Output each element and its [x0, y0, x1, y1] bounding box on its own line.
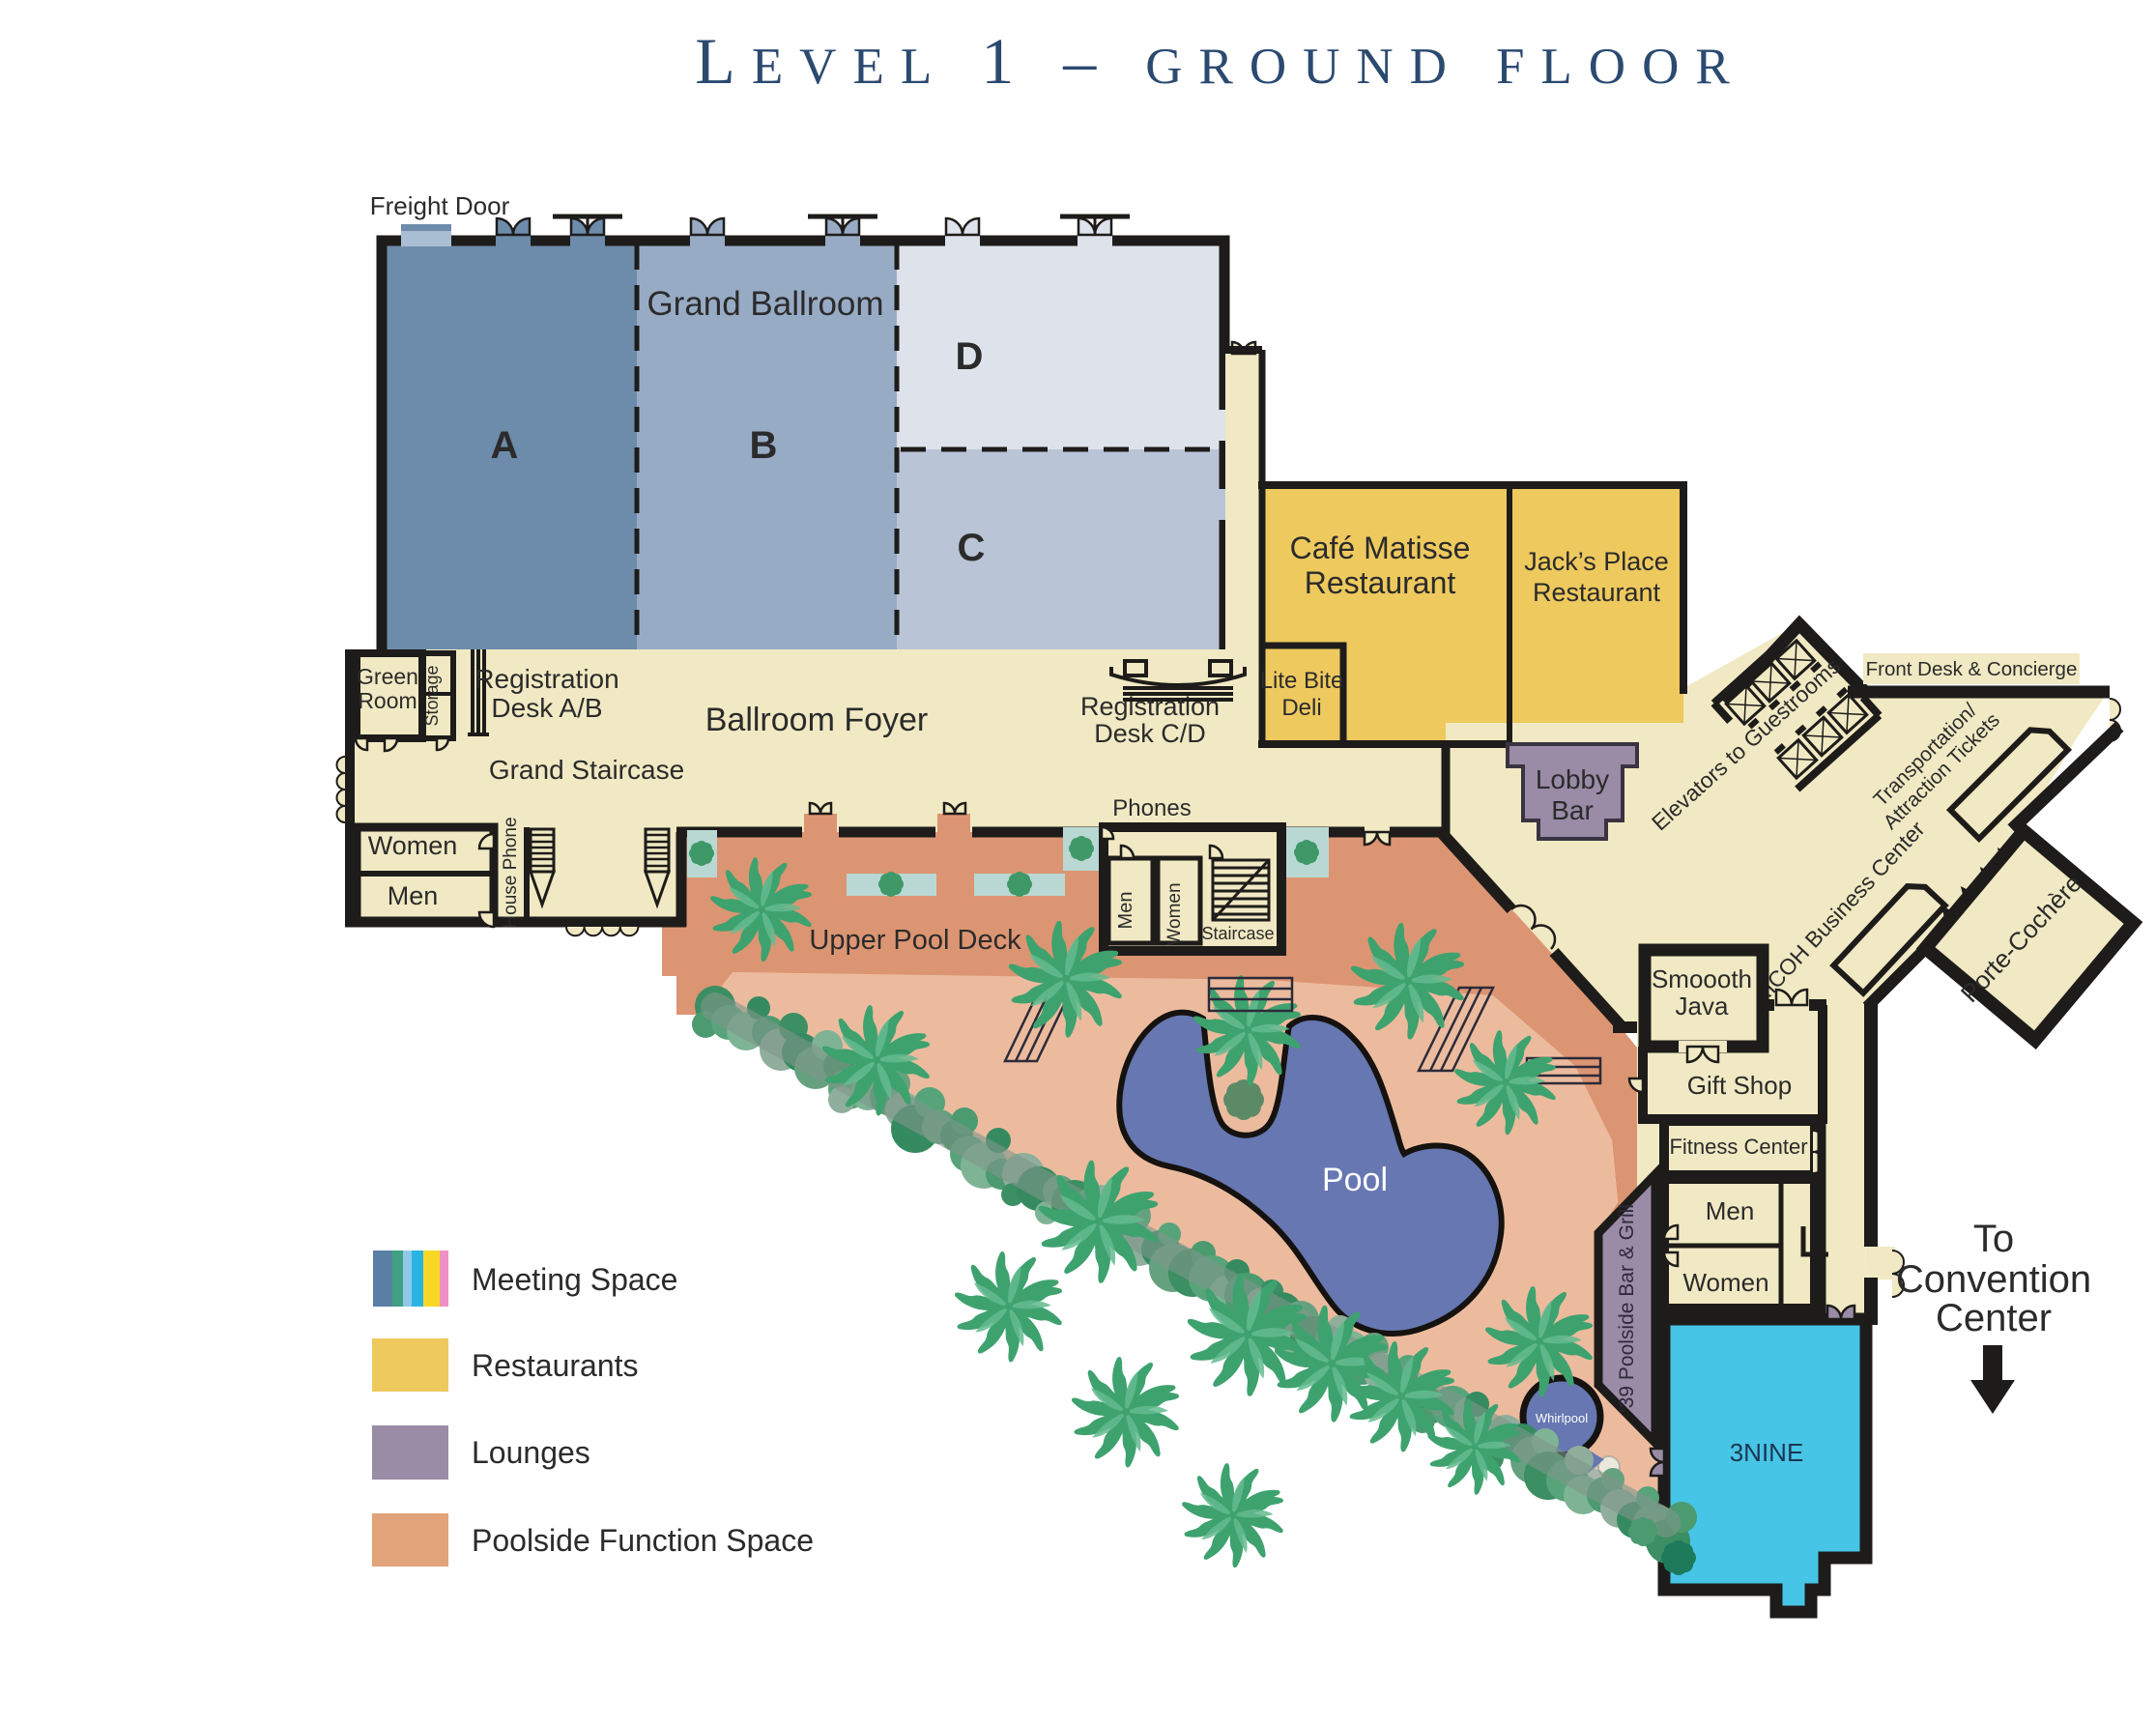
svg-text:Restaurants: Restaurants — [472, 1348, 639, 1383]
svg-text:Fitness Center: Fitness Center — [1669, 1135, 1807, 1159]
svg-text:Registration: Registration — [474, 664, 618, 694]
svg-text:A: A — [491, 424, 519, 467]
svg-text:C: C — [958, 527, 986, 569]
svg-text:‘39 Poolside Bar & Grill: ‘39 Poolside Bar & Grill — [1616, 1204, 1638, 1413]
svg-text:Whirlpool: Whirlpool — [1536, 1411, 1588, 1425]
svg-text:Café Matisse: Café Matisse — [1290, 531, 1471, 565]
svg-text:Men: Men — [388, 881, 439, 910]
svg-text:Smoooth: Smoooth — [1652, 964, 1752, 993]
svg-text:Storage: Storage — [422, 665, 442, 726]
svg-text:Front Desk & Concierge: Front Desk & Concierge — [1866, 658, 2078, 680]
svg-text:Women: Women — [1682, 1268, 1768, 1297]
svg-text:Desk C/D: Desk C/D — [1094, 719, 1206, 748]
svg-text:Meeting Space: Meeting Space — [472, 1262, 677, 1297]
svg-text:Staircase: Staircase — [1201, 924, 1274, 943]
svg-text:Bar: Bar — [1551, 795, 1594, 825]
svg-text:Men: Men — [1115, 892, 1136, 930]
svg-text:Men: Men — [1706, 1196, 1755, 1225]
svg-text:Lite Bite: Lite Bite — [1260, 668, 1344, 694]
svg-text:Gift Shop: Gift Shop — [1687, 1071, 1792, 1100]
svg-text:Ballroom Foyer: Ballroom Foyer — [705, 702, 929, 738]
svg-text:B: B — [750, 424, 778, 467]
svg-text:To: To — [1973, 1218, 2014, 1260]
svg-text:Restaurant: Restaurant — [1305, 565, 1456, 600]
svg-text:House Phone: House Phone — [501, 817, 521, 928]
svg-text:Women: Women — [368, 831, 458, 860]
svg-text:Convention: Convention — [1896, 1258, 2091, 1301]
svg-text:Upper Pool Deck: Upper Pool Deck — [809, 925, 1021, 956]
svg-text:Center: Center — [1936, 1297, 2052, 1339]
svg-text:Grand Staircase: Grand Staircase — [489, 755, 684, 785]
svg-text:Pool: Pool — [1322, 1162, 1388, 1198]
svg-text:3NINE: 3NINE — [1730, 1438, 1804, 1467]
svg-text:Deli: Deli — [1281, 695, 1321, 721]
svg-text:Java: Java — [1676, 992, 1729, 1021]
svg-text:Grand Ballroom: Grand Ballroom — [647, 285, 883, 323]
svg-text:Lounges: Lounges — [472, 1435, 590, 1470]
svg-text:Jack’s Place: Jack’s Place — [1524, 547, 1669, 576]
svg-text:Desk A/B: Desk A/B — [491, 693, 602, 723]
svg-text:Women: Women — [1164, 882, 1185, 945]
svg-text:D: D — [956, 335, 984, 378]
svg-text:Green: Green — [357, 664, 418, 689]
svg-text:Restaurant: Restaurant — [1533, 578, 1661, 607]
svg-text:Room: Room — [358, 688, 417, 713]
svg-text:Registration: Registration — [1080, 692, 1220, 721]
svg-text:Freight Door: Freight Door — [370, 191, 510, 220]
svg-text:Poolside Function Space: Poolside Function Space — [472, 1523, 814, 1558]
svg-text:Phones: Phones — [1112, 795, 1191, 821]
svg-text:Lobby: Lobby — [1536, 764, 1609, 794]
